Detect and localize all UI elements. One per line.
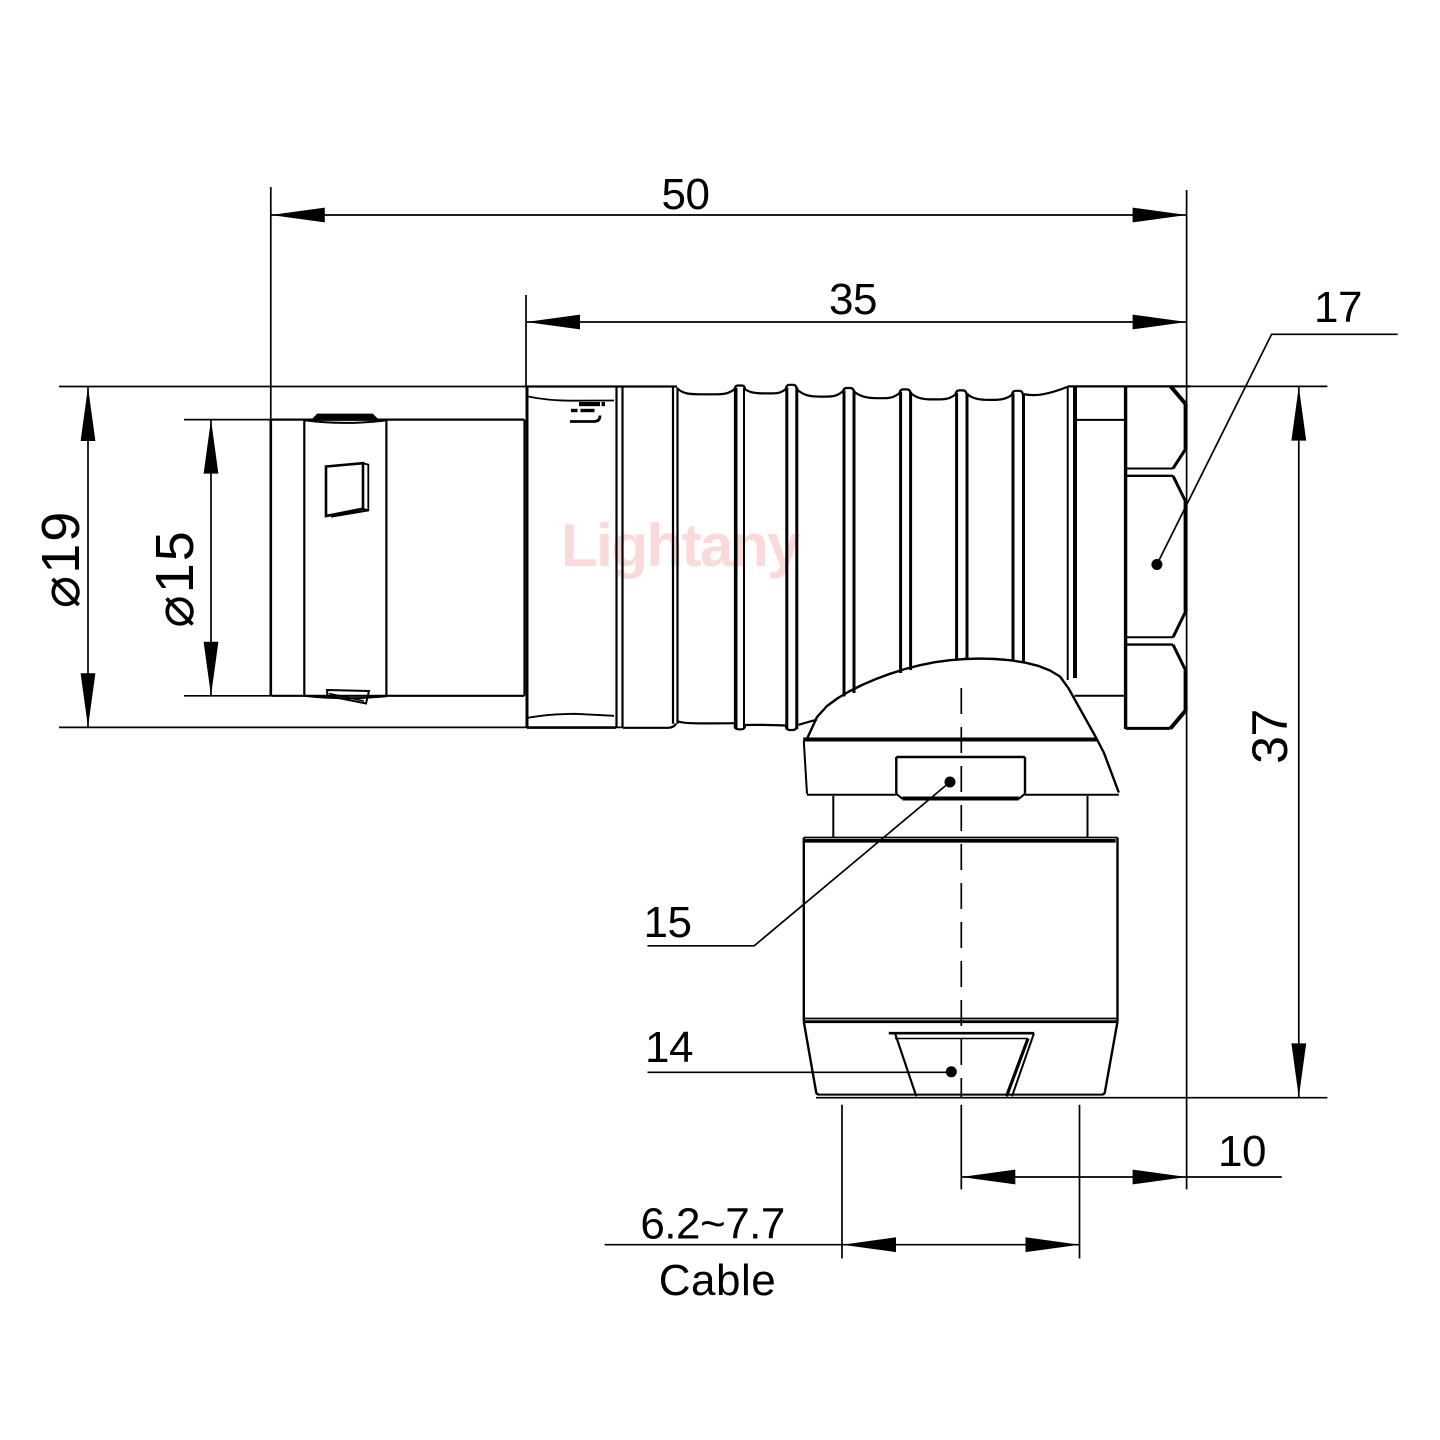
svg-text:10: 10 bbox=[1218, 1127, 1266, 1176]
svg-text:15: 15 bbox=[644, 898, 692, 947]
svg-text:6.2~7.7: 6.2~7.7 bbox=[640, 1200, 785, 1249]
svg-text:Lightany: Lightany bbox=[561, 512, 801, 579]
svg-text:17: 17 bbox=[1314, 283, 1362, 332]
svg-text:⌀19: ⌀19 bbox=[31, 510, 91, 609]
svg-text:⌀15: ⌀15 bbox=[145, 529, 205, 628]
svg-text:14: 14 bbox=[645, 1023, 693, 1072]
svg-text:Cable: Cable bbox=[659, 1256, 776, 1305]
svg-text:37: 37 bbox=[1242, 709, 1298, 764]
svg-text:35: 35 bbox=[829, 275, 877, 324]
svg-text:50: 50 bbox=[662, 170, 710, 219]
